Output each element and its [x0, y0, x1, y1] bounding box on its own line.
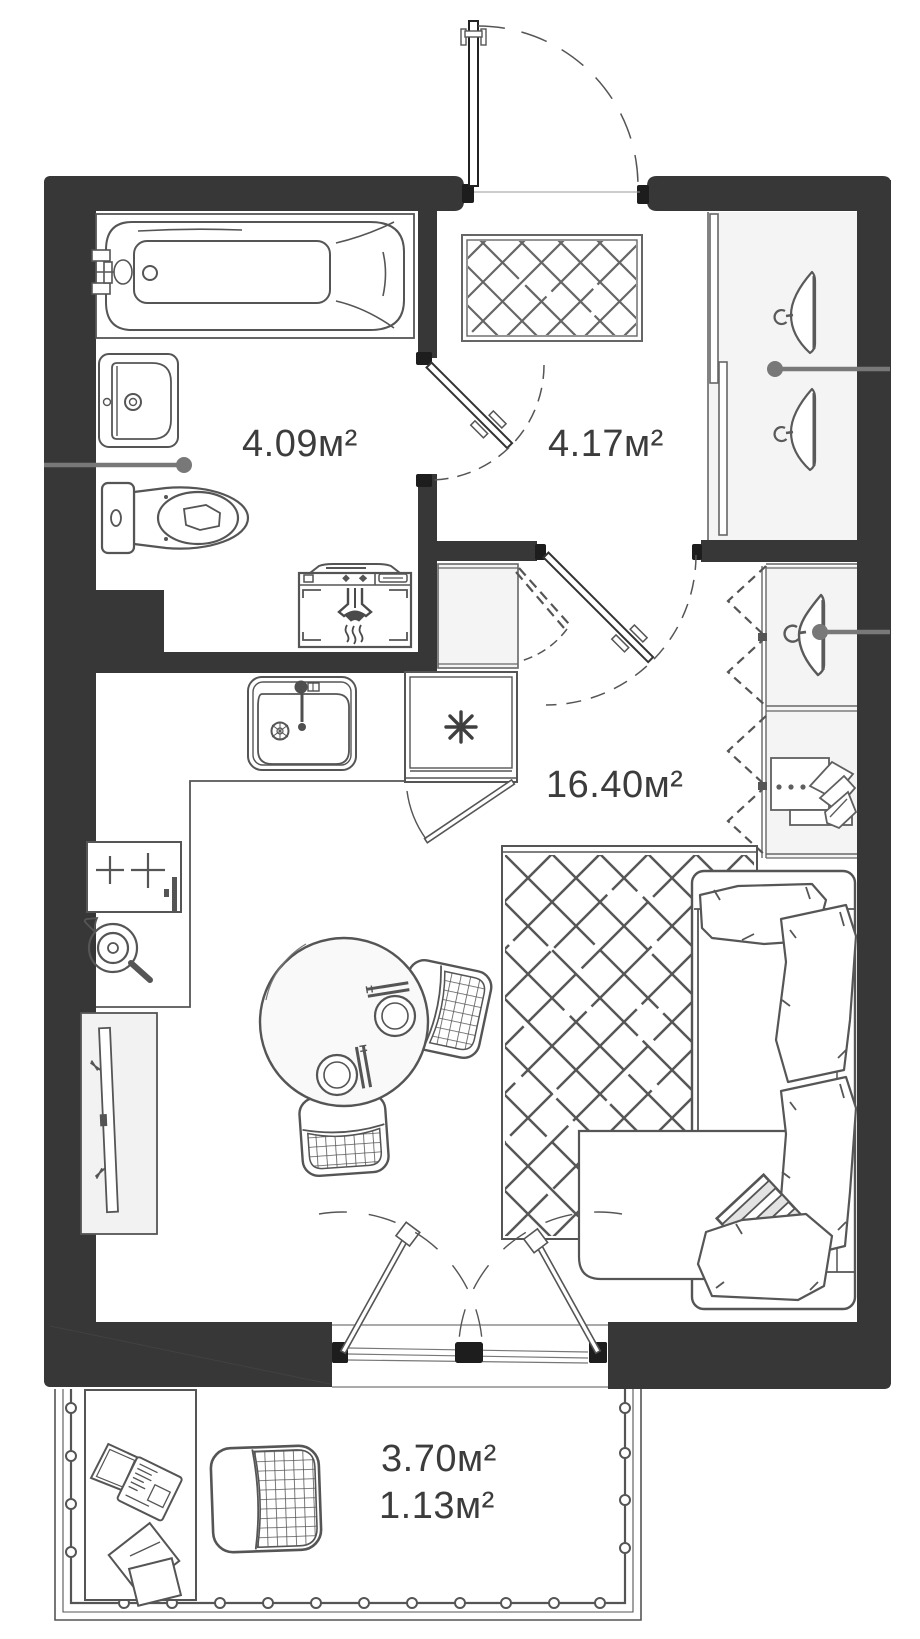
svg-text:4.17м²: 4.17м²	[548, 423, 664, 465]
svg-text:4.09м²: 4.09м²	[242, 423, 358, 465]
svg-text:3.70м²: 3.70м²	[381, 1438, 497, 1480]
svg-text:16.40м²: 16.40м²	[546, 764, 683, 806]
svg-text:1.13м²: 1.13м²	[379, 1485, 495, 1527]
